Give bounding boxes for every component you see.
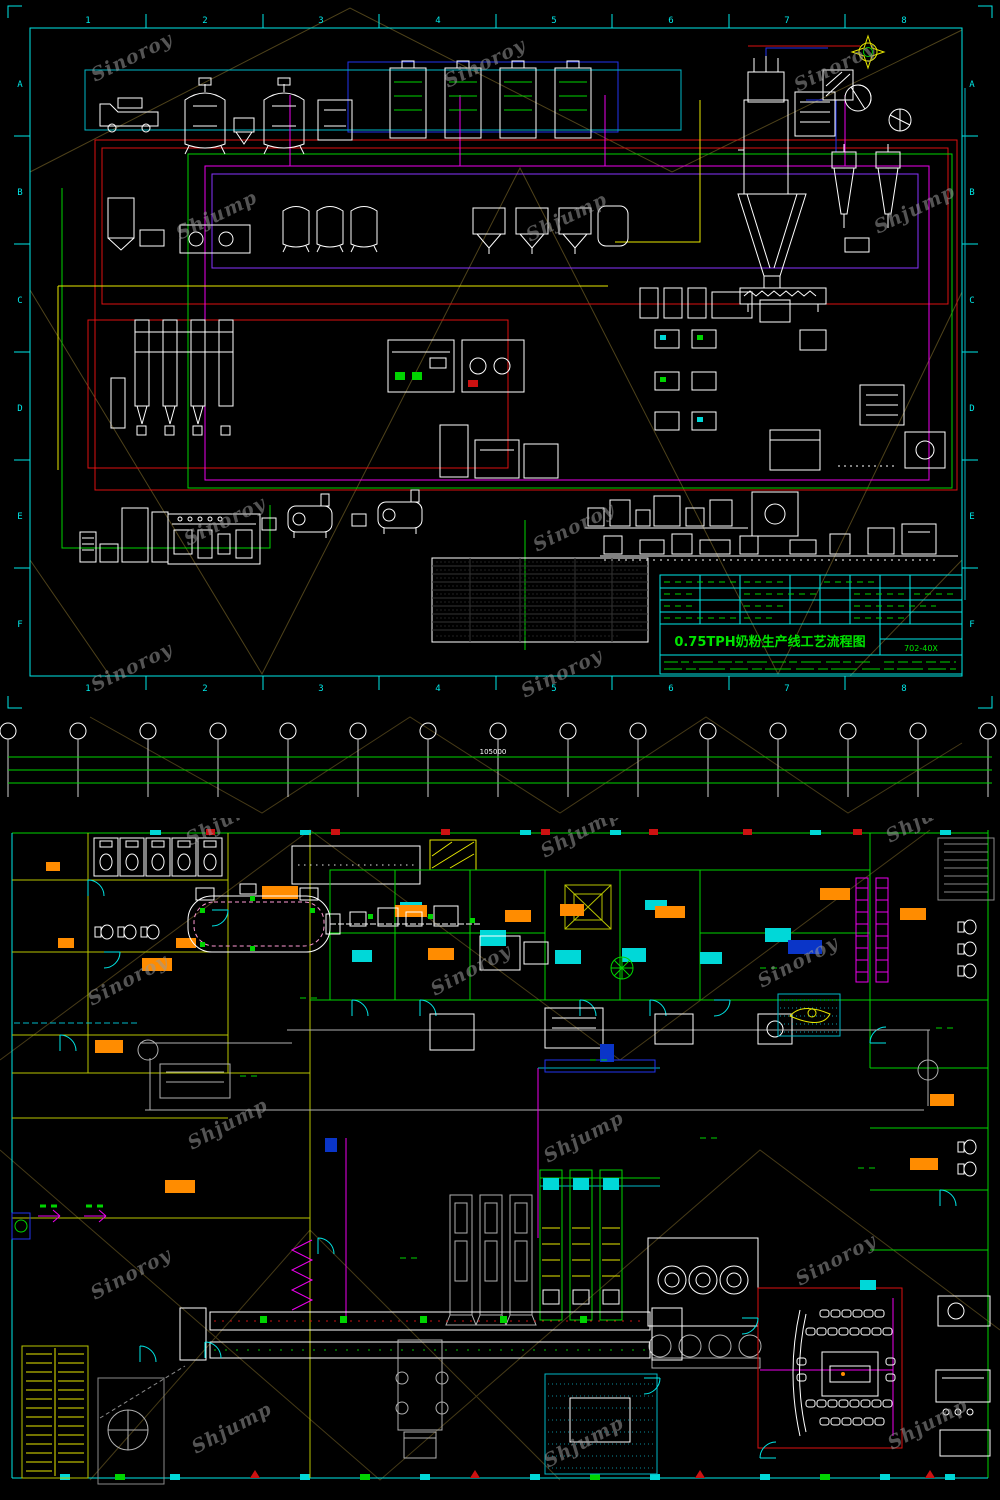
process-rooms (262, 833, 994, 1254)
watermark: Sinoroy (88, 28, 178, 87)
watermark: Shjump (540, 1107, 628, 1168)
grid-col-label: 7 (784, 16, 789, 26)
freight-lobby-arrows (38, 1206, 106, 1222)
grid-col-label: 4 (435, 16, 440, 26)
floor-plan-sheet: Shjump Shjump Shjump Sinoroy Sinoroy Sin… (0, 818, 1000, 1500)
watermark: Sinoroy (530, 498, 620, 557)
drawing-title: 0.75TPH奶粉生产线工艺流程图 (674, 634, 865, 650)
grid-bubble-label: 3 (146, 728, 150, 736)
bay-dimension: 7500 (874, 761, 892, 769)
evaporator-station (111, 320, 233, 435)
piping-network (58, 46, 965, 650)
title-block-small-text (664, 582, 958, 669)
grid-col-label: 3 (318, 16, 323, 26)
drawing-number: 702-40X (904, 644, 938, 653)
case-conveyors (180, 1308, 682, 1360)
bay-dimension: 7500 (664, 761, 682, 769)
grid-col-label: 2 (202, 16, 207, 26)
grid-labels: 12345678 12345678 ABCDEF ABCDEF (17, 16, 975, 694)
cip-station (640, 288, 752, 318)
grid-row-label: A (969, 80, 975, 90)
watermark: Sinoroy (84, 949, 173, 1010)
watermark: Shjump (188, 1398, 276, 1459)
office-desks (936, 1296, 990, 1456)
grid-row-label: D (969, 404, 974, 414)
pipe-runs (14, 940, 893, 1370)
process-flow-sheet: 12345678 12345678 ABCDEF ABCDEF (0, 0, 1000, 713)
grid-bubble-label: 12 (774, 728, 783, 736)
grid-bubble-label: 14 (914, 728, 923, 736)
meeting-chairs (797, 1310, 895, 1425)
bay-dimension: 7500 (104, 761, 122, 769)
grid-row-label: C (17, 296, 22, 306)
grid-row-label: E (17, 512, 22, 522)
watermark: Shjump (884, 1394, 972, 1455)
furniture (46, 862, 196, 1193)
sub-dimension: 4000 (735, 774, 753, 782)
grid-col-label: 3 (318, 684, 323, 694)
column-grid-strip: 123456789101112131415 105000 75007500750… (0, 713, 1000, 818)
watermark: Sinoroy (181, 492, 271, 551)
bay-dimension: 7500 (594, 761, 612, 769)
process-towers (446, 1170, 761, 1368)
watermark: Shjump (182, 818, 270, 850)
bay-dimension: 7500 (454, 761, 472, 769)
right-top-stairwell (938, 838, 994, 900)
grid-bubbles: 123456789101112131415 (0, 723, 996, 797)
building-walls (0, 818, 1000, 1500)
sub-dimension: 700 (948, 774, 961, 782)
grid-col-label: 8 (901, 16, 906, 26)
process-skids (388, 340, 558, 478)
bay-dimension: 7500 (944, 761, 962, 769)
dimension-lines: 105000 750075007500750075007500750075007… (8, 748, 992, 803)
edge-dimension: 4800 (291, 795, 309, 803)
equipment-list-table (432, 558, 648, 642)
milk-truck (100, 98, 158, 132)
cad-screenshot: 12345678 12345678 ABCDEF ABCDEF (0, 0, 1000, 1500)
title-block: 0.75TPH奶粉生产线工艺流程图 702-40X (660, 575, 962, 674)
sub-dimension: 3500 (345, 774, 363, 782)
grid-row-label: B (969, 188, 974, 198)
sub-dimension: 700 (106, 774, 119, 782)
bay-dimension: 7500 (384, 761, 402, 769)
bay-dimension: 7500 (804, 761, 822, 769)
grid-bubble-label: 11 (704, 728, 713, 736)
grid-col-label: 4 (435, 684, 440, 694)
grid-bubble-label: 9 (566, 728, 570, 736)
meeting-room (742, 1280, 902, 1448)
grid-row-label: E (969, 512, 974, 522)
grid-row-label: F (969, 620, 974, 630)
grid-bubble-label: 6 (356, 728, 361, 736)
bay-dimension: 7500 (34, 761, 52, 769)
watermark: Sinoroy (88, 638, 178, 697)
powder-handling-units (655, 300, 945, 470)
spray-dryer (738, 56, 900, 312)
bay-dimension: 7500 (244, 761, 262, 769)
watermark: Shjump (537, 818, 625, 862)
grid-row-label: B (17, 188, 22, 198)
sub-dimension: 700 (176, 774, 189, 782)
grid-col-label: 5 (551, 16, 556, 26)
fold-lines (30, 8, 962, 676)
bay-dimension: 7500 (524, 761, 542, 769)
grid-row-label: F (17, 620, 22, 630)
grid-col-label: 1 (85, 684, 90, 694)
watermark: Sinoroy (87, 1243, 176, 1304)
sheet-divider (0, 713, 1000, 716)
grid-bubble-label: 8 (496, 728, 500, 736)
grid-bubble-label: 1 (6, 728, 10, 736)
grid-bubble-label: 15 (984, 728, 993, 736)
watermark: Shjump (184, 1094, 272, 1155)
grid-col-label: 6 (668, 684, 673, 694)
room-equipment (262, 878, 956, 1254)
stairwell (22, 1346, 88, 1478)
grid-col-label: 7 (784, 684, 789, 694)
grid-bubble-label: 10 (634, 728, 643, 736)
watermark: Shjump (173, 186, 261, 244)
packaging-lines (585, 492, 958, 560)
bay-dimension: 7500 (314, 761, 332, 769)
bottom-band (0, 1490, 1000, 1500)
sheet-border: 12345678 12345678 ABCDEF ABCDEF (14, 14, 978, 694)
edge-dimension: 4800 (646, 795, 664, 803)
sub-dimension: 700 (526, 774, 539, 782)
bay-dimension: 7500 (734, 761, 752, 769)
grid-bubble-label: 13 (844, 728, 853, 736)
grid-row-label: D (17, 404, 22, 414)
grid-bubble-label: 5 (286, 728, 290, 736)
fold-lines (90, 717, 962, 813)
grid-bubble-label: 4 (216, 728, 221, 736)
total-dimension: 105000 (480, 748, 507, 756)
grid-col-label: 2 (202, 684, 207, 694)
watermark: Sinoroy (518, 644, 608, 703)
sub-dimension: 700 (36, 774, 49, 782)
grid-row-label: C (969, 296, 974, 306)
grid-col-label: 6 (668, 16, 673, 26)
grid-bubble-label: 2 (76, 728, 80, 736)
grid-row-label: A (17, 80, 23, 90)
grid-col-label: 1 (85, 16, 90, 26)
grid-col-label: 8 (901, 684, 906, 694)
watermark: Sinoroy (441, 34, 531, 93)
